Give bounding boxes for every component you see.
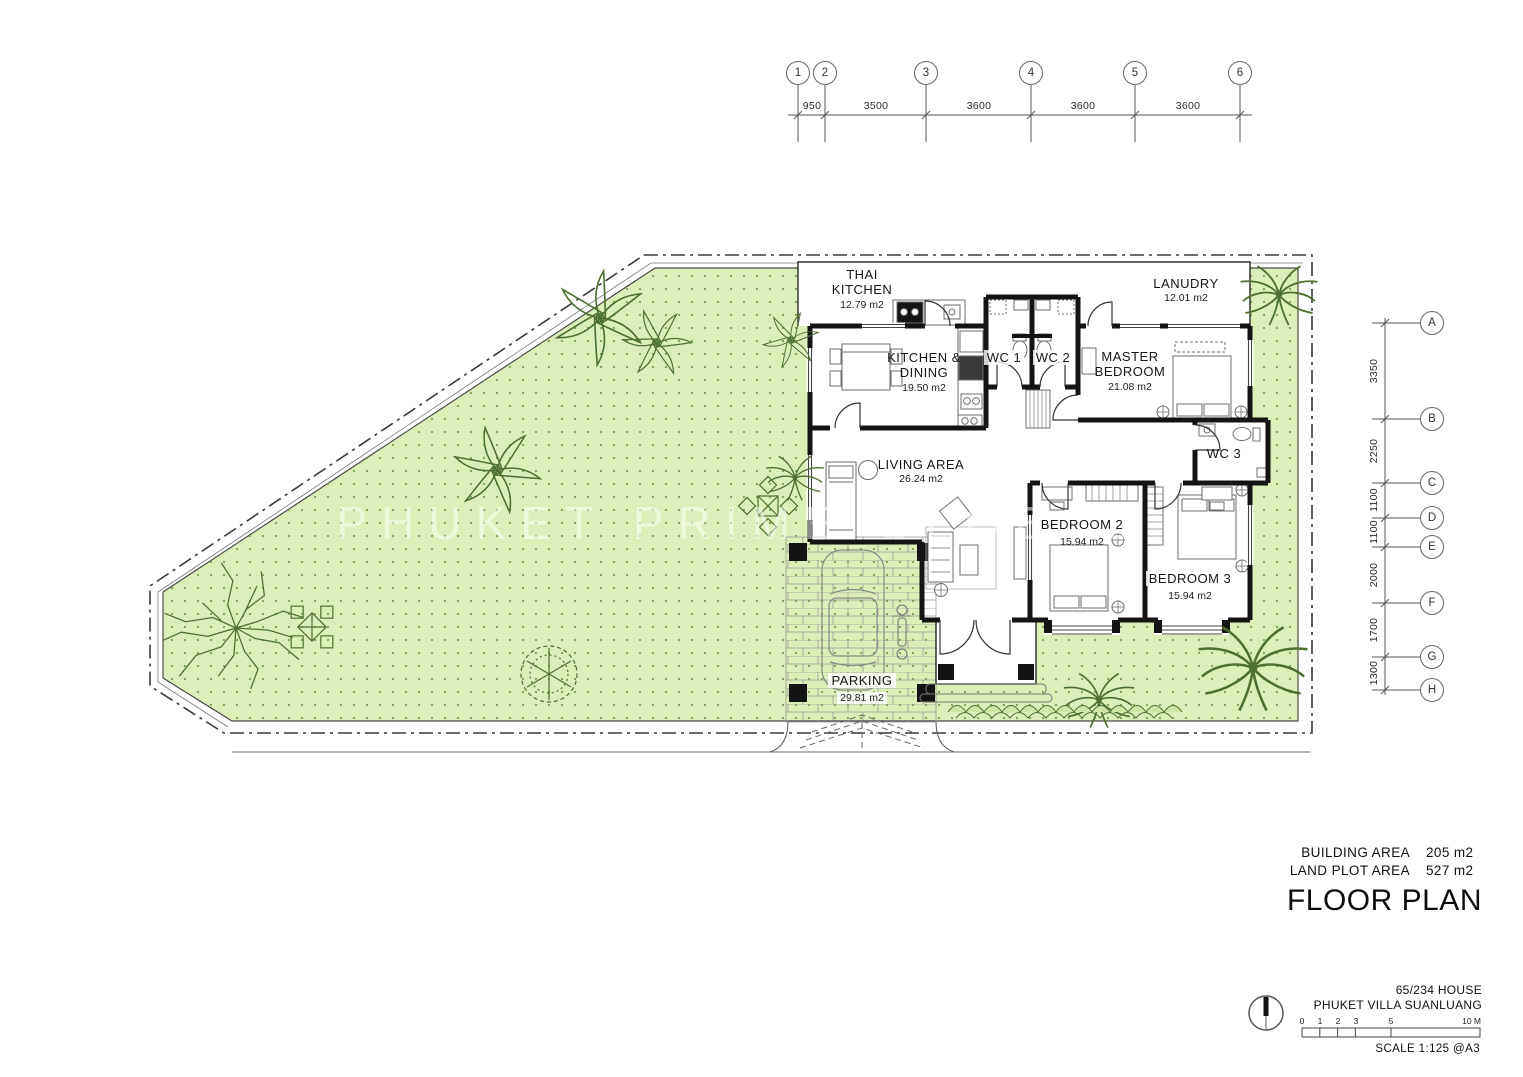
room-area: 21.08 m2 — [1085, 381, 1175, 393]
room-area: 12.79 m2 — [822, 299, 902, 311]
room-area: 15.94 m2 — [1027, 536, 1137, 548]
room-label-parking: PARKING 29.81 m2 — [807, 672, 917, 704]
grid-bubble-E: E — [1420, 535, 1444, 559]
scale-tick: 2 — [1336, 1016, 1341, 1026]
room-name: LANUDRY — [1116, 276, 1256, 291]
grid-bubble-D: D — [1420, 506, 1444, 530]
room-name: THAI KITCHEN — [822, 267, 902, 298]
room-label-master-bedroom: MASTER BEDROOM 21.08 m2 — [1085, 349, 1175, 393]
room-label-bedroom3: BEDROOM 3 15.94 m2 — [1135, 570, 1245, 602]
area-summary: BUILDING AREA 205 m2 LAND PLOT AREA 527 … — [1287, 845, 1482, 918]
dim-1300: 1300 — [1368, 661, 1380, 686]
room-area: 29.81 m2 — [837, 692, 887, 704]
building-area-label: BUILDING AREA — [1301, 845, 1410, 860]
room-label-thai-kitchen: THAI KITCHEN 12.79 m2 — [822, 267, 902, 311]
dim-1100: 1100 — [1368, 488, 1380, 512]
grid-bubble-5: 5 — [1123, 61, 1147, 85]
land-plot-area-value: 527 m2 — [1426, 863, 1482, 878]
scale-note: SCALE 1:125 @A3 — [1375, 1043, 1480, 1055]
dim-950: 950 — [803, 100, 821, 112]
room-name: WC 2 — [1033, 350, 1074, 365]
grid-bubble-F: F — [1420, 591, 1444, 615]
dim-3600: 3600 — [1071, 100, 1096, 112]
carport-column — [789, 684, 807, 702]
project-name: 65/234 HOUSE — [1314, 983, 1482, 998]
grid-bubble-H: H — [1420, 678, 1444, 702]
building-area-value: 205 m2 — [1426, 845, 1482, 860]
grid-bubble-6: 6 — [1228, 61, 1252, 85]
grid-bubble-4: 4 — [1019, 61, 1043, 85]
room-name: KITCHEN & DINING — [882, 350, 966, 381]
porch-column — [938, 664, 954, 680]
scale-tick: 0 — [1300, 1016, 1305, 1026]
grid-bubble-C: C — [1420, 471, 1444, 495]
room-area: 19.50 m2 — [882, 382, 966, 394]
room-name: WC 3 — [1199, 446, 1249, 461]
room-label-kitchen-dining: KITCHEN & DINING 19.50 m2 — [882, 350, 966, 394]
title-block: 65/234 HOUSE PHUKET VILLA SUANLUANG — [1314, 983, 1482, 1013]
north-arrow-icon — [1249, 996, 1283, 1030]
project-location: PHUKET VILLA SUANLUANG — [1314, 998, 1482, 1013]
grid-bubble-1: 1 — [786, 61, 810, 85]
room-label-bedroom2: BEDROOM 2 15.94 m2 — [1027, 516, 1137, 548]
room-area: 15.94 m2 — [1135, 590, 1245, 602]
scale-tick: 10 M — [1462, 1016, 1481, 1026]
scale-tick: 1 — [1318, 1016, 1323, 1026]
column-grid — [788, 84, 1252, 142]
dim-3500: 3500 — [864, 100, 889, 112]
dim-1100: 1100 — [1368, 520, 1380, 544]
scale-bar — [1302, 1028, 1480, 1037]
floor-plan-sheet: PHUKET PRIME GLOBAL 1 2 3 4 5 6 950 3500… — [0, 0, 1523, 1077]
room-area: 12.01 m2 — [1116, 292, 1256, 304]
dim-1700: 1700 — [1368, 618, 1380, 643]
room-name: PARKING — [828, 673, 895, 688]
scale-tick: 3 — [1354, 1016, 1359, 1026]
grid-bubble-A: A — [1420, 311, 1444, 335]
room-area: 26.24 m2 — [856, 473, 986, 485]
porch-column — [1018, 664, 1034, 680]
carport-column — [789, 543, 807, 561]
room-name: LIVING AREA — [856, 457, 986, 472]
room-label-wc3: WC 3 — [1199, 446, 1249, 461]
dim-3600: 3600 — [1176, 100, 1201, 112]
room-label-living: LIVING AREA 26.24 m2 — [856, 457, 986, 486]
land-plot-area-row: LAND PLOT AREA 527 m2 — [1287, 863, 1482, 878]
grid-bubble-2: 2 — [813, 61, 837, 85]
room-label-wc2: WC 2 — [1028, 349, 1078, 368]
scale-tick: 5 — [1389, 1016, 1394, 1026]
dim-2000: 2000 — [1368, 563, 1380, 588]
dim-3600: 3600 — [967, 100, 992, 112]
dim-2250: 2250 — [1368, 439, 1380, 464]
room-name: BEDROOM 3 — [1146, 571, 1235, 586]
drawing-title: FLOOR PLAN — [1287, 884, 1482, 918]
grid-bubble-G: G — [1420, 645, 1444, 669]
grid-bubble-3: 3 — [914, 61, 938, 85]
room-name: BEDROOM 2 — [1038, 517, 1127, 532]
room-name: WC 1 — [984, 350, 1025, 365]
room-label-wc1: WC 1 — [979, 349, 1029, 368]
dim-3350: 3350 — [1368, 359, 1380, 384]
room-name: MASTER BEDROOM — [1085, 349, 1175, 380]
land-plot-area-label: LAND PLOT AREA — [1290, 863, 1410, 878]
building-area-row: BUILDING AREA 205 m2 — [1287, 845, 1482, 860]
parking-area — [770, 537, 954, 752]
room-label-laundry: LANUDRY 12.01 m2 — [1116, 276, 1256, 305]
grid-bubble-B: B — [1420, 407, 1444, 431]
